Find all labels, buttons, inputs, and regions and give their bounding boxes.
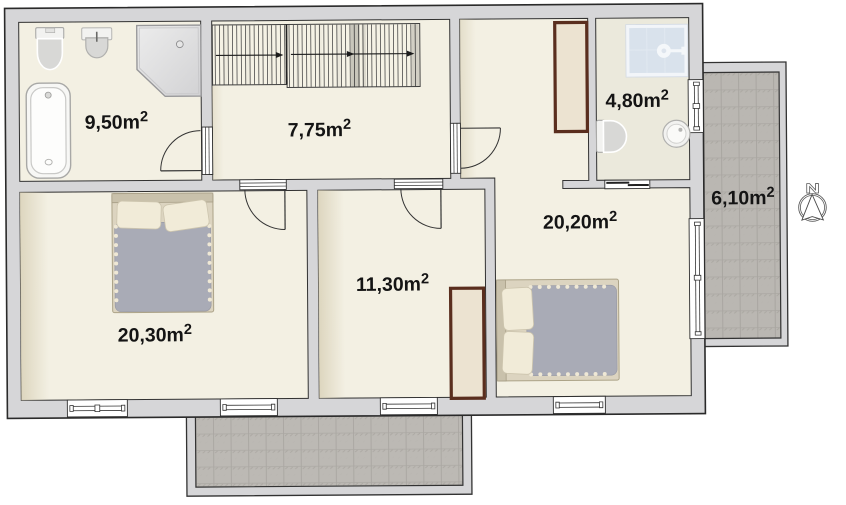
svg-text:20,30m2: 20,30m2 <box>118 322 192 347</box>
svg-text:20,20m2: 20,20m2 <box>543 209 617 234</box>
svg-text:7,75m2: 7,75m2 <box>288 117 352 142</box>
svg-text:9,50m2: 9,50m2 <box>85 109 149 134</box>
svg-text:4,80m2: 4,80m2 <box>605 88 669 113</box>
svg-text:11,30m2: 11,30m2 <box>356 271 429 296</box>
svg-text:6,10m2: 6,10m2 <box>711 185 775 210</box>
